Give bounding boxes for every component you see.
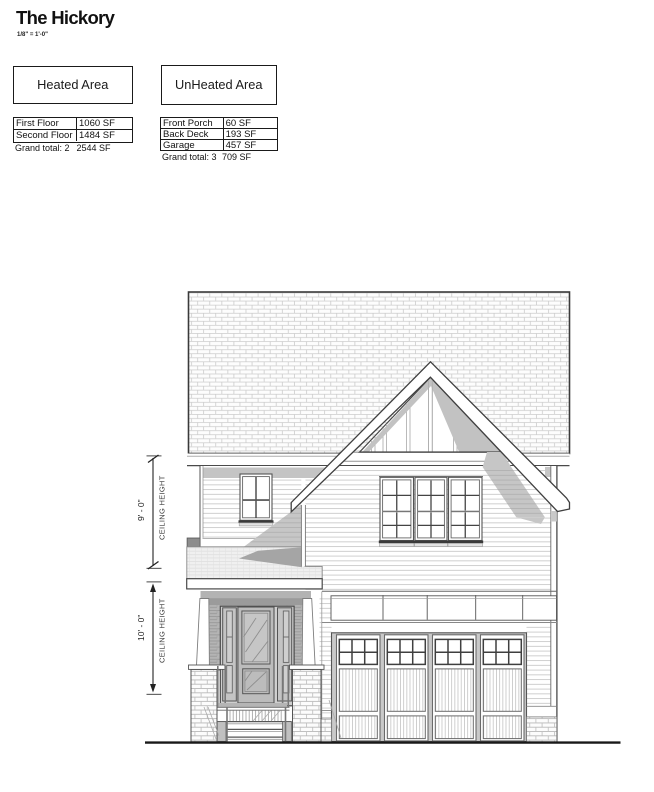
svg-text:9' - 0": 9' - 0" [136,499,146,521]
svg-text:10' - 0": 10' - 0" [136,615,146,641]
svg-text:CEILING HEIGHT: CEILING HEIGHT [158,475,167,540]
svg-text:CEILING HEIGHT: CEILING HEIGHT [158,598,167,663]
